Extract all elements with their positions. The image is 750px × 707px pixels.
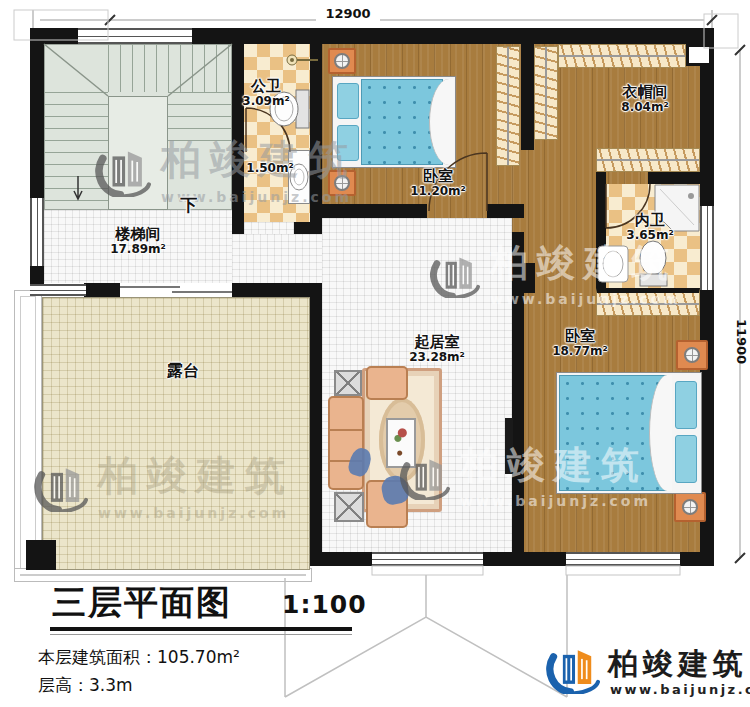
floor-area-value: 105.70m² — [157, 647, 240, 667]
floor-height-label: 层高： — [38, 675, 89, 695]
title-underline — [50, 627, 352, 631]
window-bottom-living — [372, 552, 483, 566]
stair-flight-left — [44, 92, 108, 210]
label-cloakroom: 衣帽间 8.04m² — [600, 84, 690, 114]
floor-area-label: 本层建筑面积： — [38, 647, 157, 667]
wall-bedroom1-cloakroom — [521, 44, 534, 150]
column-top-right — [686, 44, 712, 66]
wall-lobby-south-a — [232, 222, 244, 234]
window-right-ensuite — [700, 206, 714, 290]
floor-plan-canvas: 柏竣建筑 www.baijunjz.com 柏竣建筑 www.baijunjz.… — [0, 0, 750, 707]
lobby-opening-floor — [244, 222, 294, 234]
wall-bath-east — [310, 28, 322, 234]
lamp-icon — [334, 175, 350, 191]
pillow — [675, 381, 697, 429]
bedroom2-wardrobe-rack — [596, 288, 700, 316]
stair-well — [108, 96, 168, 210]
window-left-stairwell — [30, 198, 44, 266]
label-bath-lobby: 1.50m² — [238, 162, 302, 175]
window-bottom-bedroom2 — [566, 552, 680, 566]
bedroom1-bed — [332, 76, 456, 168]
floor-area-line: 本层建筑面积：105.70m² — [38, 646, 240, 669]
company-logo-icon — [546, 640, 600, 694]
tv — [505, 418, 513, 474]
pillow — [337, 83, 359, 119]
wall-ensuite-west — [596, 184, 606, 288]
plan-title: 三层平面图 — [52, 580, 232, 626]
label-bedroom1: 卧室 11.20m² — [398, 168, 478, 198]
label-stair-down: 下 — [176, 196, 202, 215]
floor-height-line: 层高：3.3m — [38, 674, 133, 697]
sill-bedroom2 — [566, 566, 680, 575]
stair-flight-right — [168, 92, 232, 148]
coffee-table — [386, 418, 416, 468]
label-public-bath: 公卫 3.09m² — [234, 78, 298, 108]
floor-height-value: 3.3m — [89, 675, 133, 695]
lamp-icon — [334, 53, 350, 69]
wall-bedroom1-south-stub — [487, 204, 524, 218]
pillow — [337, 125, 359, 161]
label-living-room: 起居室 23.28m² — [394, 334, 480, 364]
title-underline-thin — [50, 634, 352, 635]
lamp-icon — [682, 499, 698, 515]
sill-living — [372, 566, 483, 575]
label-bedroom2: 卧室 18.77m² — [534, 328, 626, 358]
company-website: www.baijunjz.com — [610, 682, 750, 697]
wall-bedroom1-south — [322, 204, 427, 218]
side-table — [334, 370, 362, 396]
wall-living-west — [310, 283, 322, 566]
wall-stair-east — [232, 28, 244, 222]
sink-counter — [288, 150, 310, 204]
wall-ensuite-north-b — [648, 172, 700, 184]
bedroom1-wardrobe-rack — [496, 46, 520, 166]
armchair — [366, 366, 408, 400]
dimension-top-value: 12900 — [316, 6, 380, 21]
wall-terrace-north — [232, 283, 322, 297]
window-top-stairwell — [78, 28, 192, 44]
cloakroom-rack-west — [534, 46, 558, 140]
label-ensuite-bath: 内卫 3.65m² — [614, 212, 686, 242]
pillow — [675, 435, 697, 483]
wall-hall-stub — [521, 263, 535, 293]
terrace-floor — [42, 297, 310, 570]
wall-terrace-north-stub — [84, 283, 120, 297]
wall-right — [700, 28, 714, 566]
cloakroom-rack-north — [558, 44, 686, 68]
nightstand — [674, 492, 706, 522]
bedroom2-bed — [556, 372, 702, 494]
terrace-parapet-left — [14, 290, 42, 582]
stair-flight-top — [108, 44, 232, 92]
label-terrace: 露台 — [150, 362, 216, 380]
corridor-floor — [232, 234, 322, 283]
cloakroom-rack-south — [596, 148, 700, 172]
dimension-right-value: 11900 — [734, 307, 749, 377]
lamp-icon — [684, 347, 700, 363]
sliding-door-terrace — [120, 283, 232, 297]
roof-outline — [285, 566, 567, 697]
nightstand — [328, 48, 356, 74]
nightstand — [328, 170, 356, 196]
wall-ensuite-north-a — [596, 172, 606, 184]
label-stairwell: 楼梯间 17.89m² — [92, 226, 184, 256]
side-table — [334, 492, 364, 522]
window-terrace-nw — [30, 284, 86, 296]
column-terrace-sw — [26, 540, 56, 570]
plan-scale: 1:100 — [282, 590, 367, 619]
nightstand — [676, 340, 708, 370]
company-name: 柏竣建筑 — [608, 644, 748, 685]
